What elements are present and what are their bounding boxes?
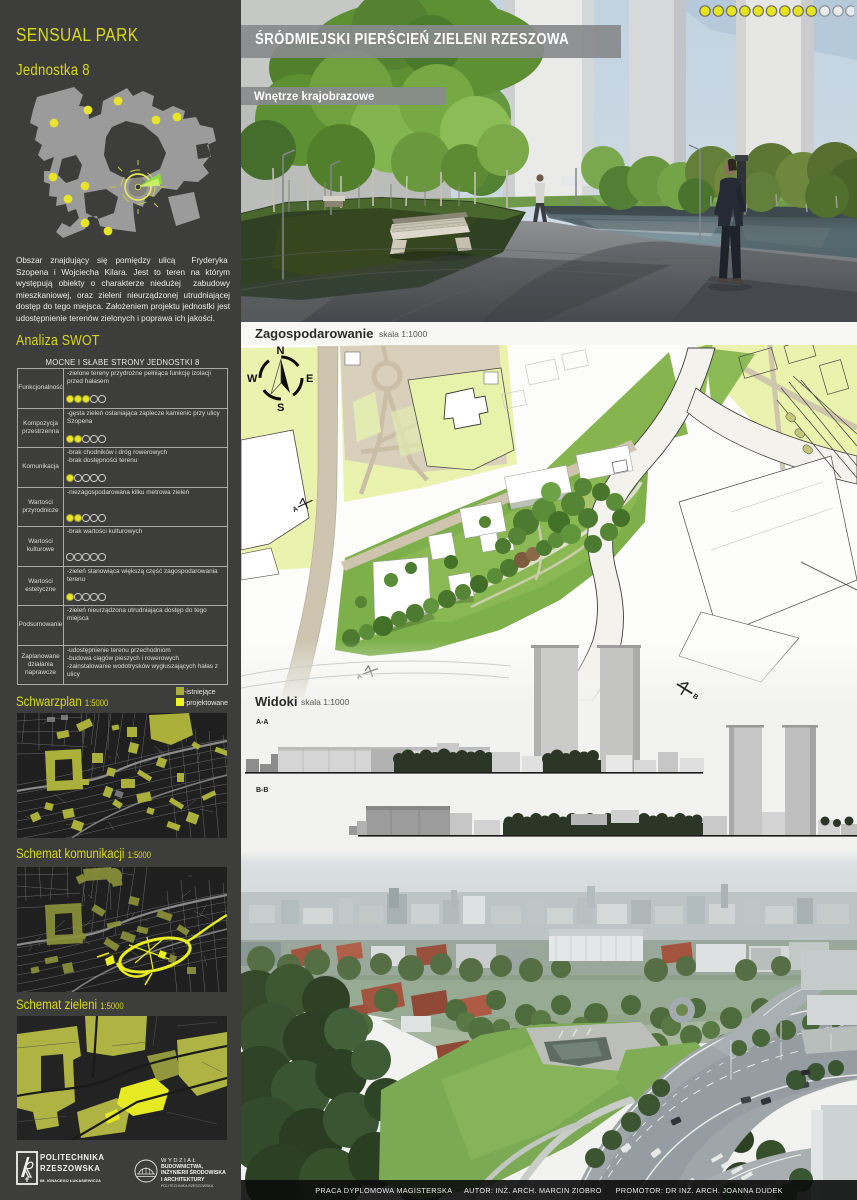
svg-text:Widoki: Widoki bbox=[255, 694, 298, 709]
svg-text:skala 1:1000: skala 1:1000 bbox=[379, 329, 427, 339]
svg-text:Zagospodarowanie: Zagospodarowanie bbox=[255, 326, 373, 341]
svg-text:N: N bbox=[277, 345, 285, 357]
svg-text:A-A: A-A bbox=[256, 719, 268, 726]
svg-text:S: S bbox=[277, 402, 284, 414]
svg-text:E: E bbox=[306, 373, 313, 385]
svg-text:B: B bbox=[691, 693, 699, 702]
svg-text:B-B: B-B bbox=[256, 787, 268, 794]
svg-text:skala 1:1000: skala 1:1000 bbox=[301, 697, 349, 707]
svg-text:W: W bbox=[247, 373, 258, 385]
